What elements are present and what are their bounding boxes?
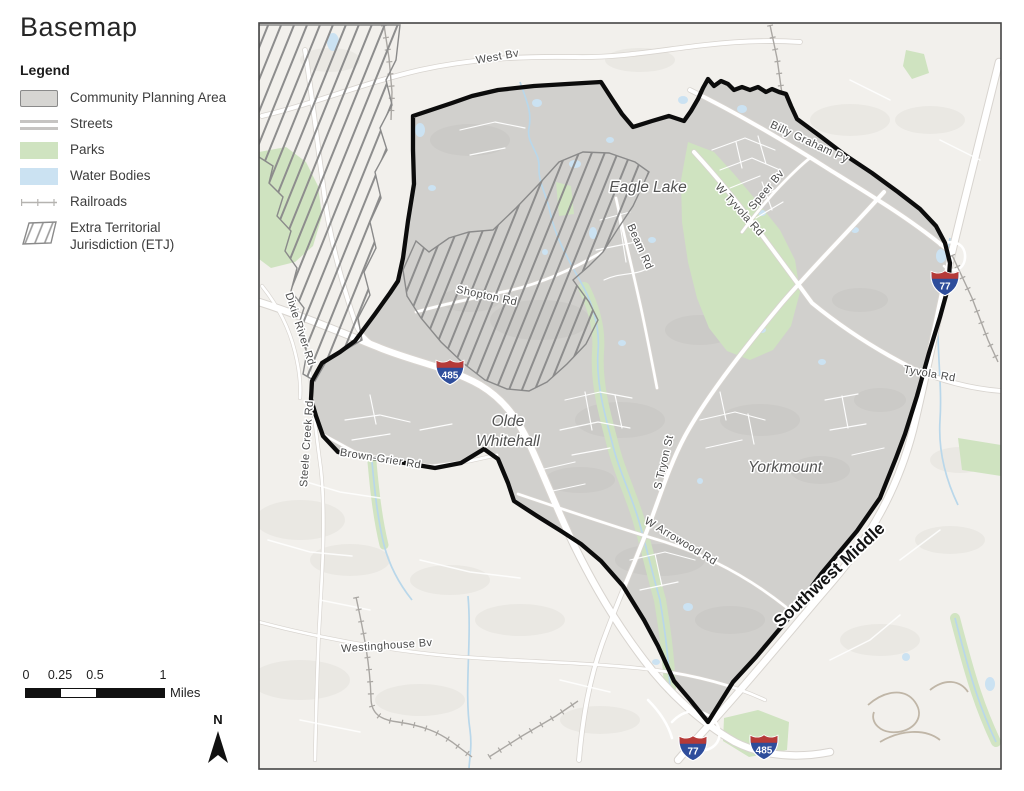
map-canvas: 485 77 77 485 West Bv Billy Graham Py [258,22,1002,770]
scale-unit: Miles [170,685,200,700]
etj-swatch [20,220,58,246]
page-title: Basemap [20,12,138,43]
area-label-eagle-lake: Eagle Lake [609,179,687,196]
legend-item-railroads: Railroads [20,194,235,211]
area-label-yorkmount: Yorkmount [748,459,823,476]
streets-swatch [20,116,58,133]
legend-item-planning-area: Community Planning Area [20,90,235,107]
svg-text:485: 485 [442,371,459,382]
area-label-olde-whitehall-2: Whitehall [476,433,540,450]
planning-area-swatch [20,90,58,107]
legend-heading: Legend [20,62,235,78]
svg-text:77: 77 [687,747,699,758]
scale-bar-segments [25,688,165,698]
parks-swatch [20,142,58,159]
water-swatch [20,168,58,185]
area-label-olde-whitehall-1: Olde [492,413,525,430]
north-arrow: N [196,712,240,774]
map-sheet: Basemap Legend Community Planning Area S… [0,0,1024,791]
legend-item-streets: Streets [20,116,235,133]
svg-text:485: 485 [756,746,773,757]
legend-item-etj: Extra Territorial Jurisdiction (ETJ) [20,220,235,254]
scale-bar: 0 0.25 0.5 1 Miles [22,668,252,708]
railroad-swatch [20,194,58,211]
north-arrow-glyph [196,727,240,769]
legend-item-water: Water Bodies [20,168,235,185]
legend-item-parks: Parks [20,142,235,159]
svg-text:77: 77 [939,282,951,293]
legend: Legend Community Planning Area Streets P… [20,62,235,263]
